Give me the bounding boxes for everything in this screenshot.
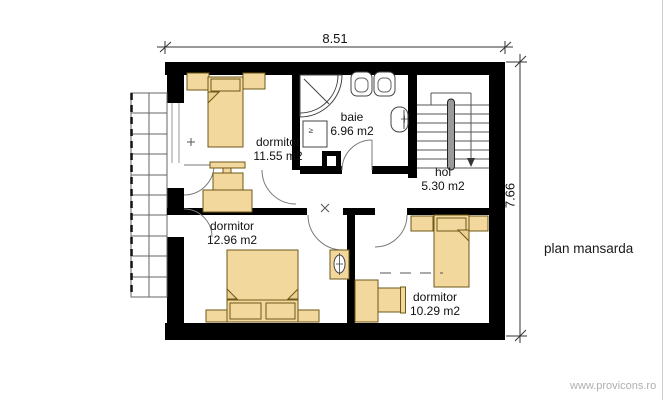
room-name: dormitor [202,220,262,234]
desk [355,280,378,322]
desk-lamp [210,162,245,168]
room-name: hol [411,166,475,180]
cross-mark [187,138,195,146]
floorplan-drawing [0,0,668,400]
room-label-dormitor-1: dormitor 11.55 m2 [250,136,306,163]
bedroom2-furniture [206,250,349,322]
nightstand [411,216,433,231]
room-label-hol: hol 5.30 m2 [411,166,475,193]
room-label-dormitor-3: dormitor 10.29 m2 [406,291,464,318]
nightstand [187,73,209,90]
pillow [266,303,295,319]
watermark-text: www.provicons.ro [570,380,656,392]
room-name: dormitor [250,136,306,150]
stair-railing [448,99,455,170]
room-name: baie [326,111,378,125]
room-label-baie: baie 6.96 m2 [326,111,378,138]
nightstand [298,310,319,322]
room-area: 12.96 m2 [202,234,262,248]
room-label-dormitor-2: dormitor 12.96 m2 [202,220,262,247]
dimension-height-label: 7.66 [503,174,518,218]
room-area: 11.55 m2 [250,150,306,164]
toilet [391,107,408,132]
plan-title: plan mansarda [544,241,633,256]
pillow [437,218,466,231]
window-glazing [172,103,179,163]
staircase [417,93,489,170]
washer-symbol: ≥ [304,126,318,135]
floorplan-page: 8.51 7.66 dormitor 11.55 m2 baie 6.96 m2… [0,0,668,400]
chair [213,173,243,190]
nightstand [206,310,227,322]
chair-back [401,287,406,313]
duct-inner [327,156,336,166]
balcony-grid [131,93,167,297]
x-mark [321,204,329,212]
pillow [230,303,261,319]
room-area: 6.96 m2 [326,125,378,139]
pillow [211,79,240,91]
room-area: 5.30 m2 [411,180,475,194]
nightstand [469,216,488,231]
chair [378,288,402,312]
room-area: 10.29 m2 [406,305,464,319]
dimension-width-label: 8.51 [305,31,365,46]
room-name: dormitor [406,291,464,305]
nightstand [243,73,265,89]
desk [203,190,252,212]
